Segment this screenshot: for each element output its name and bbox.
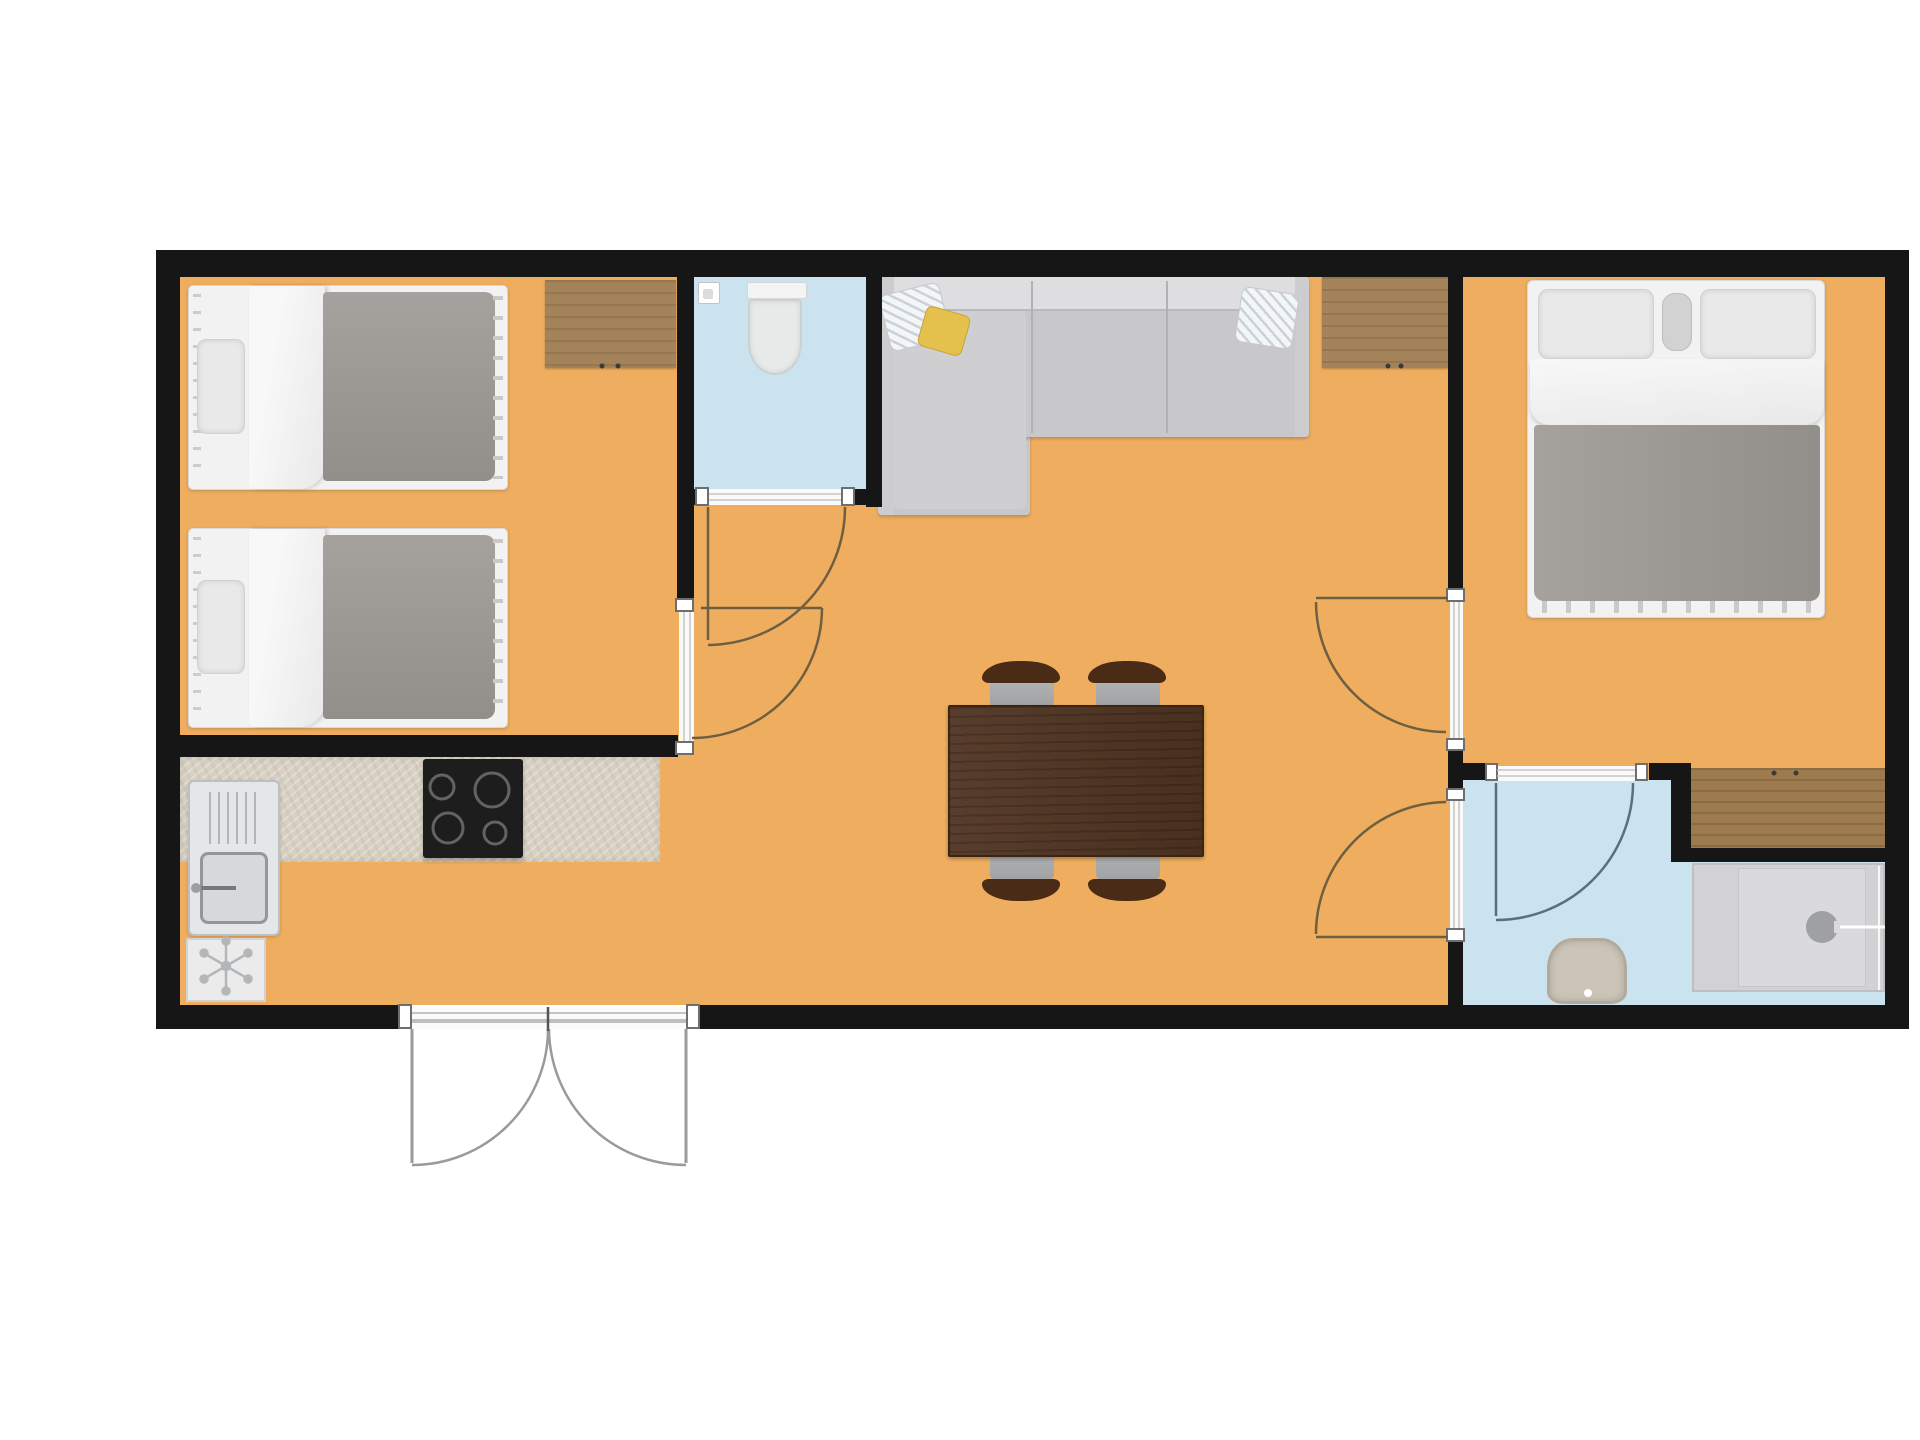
sofa-seam-1 — [1031, 281, 1033, 433]
toilet-paper-holder — [698, 282, 720, 304]
wall-bottom-right — [696, 1005, 1909, 1029]
sheet-fold — [249, 529, 325, 727]
toilet-bowl — [748, 299, 802, 375]
floor-plan — [0, 0, 1920, 1440]
sofa-seam-2 — [1166, 281, 1168, 433]
wall-living-bedroom2-mid — [1448, 751, 1463, 789]
mattress-tufting — [493, 296, 503, 479]
entrance-threshold — [412, 1007, 686, 1029]
mattress-tufting — [493, 539, 503, 717]
washbasin — [1547, 938, 1627, 1004]
bathroom-hall-door-band — [1450, 801, 1463, 928]
entrance-jamb-left — [398, 1004, 412, 1029]
bed-pillow-accent — [1662, 293, 1692, 351]
bedroom-twin-jamb-top — [675, 598, 694, 612]
bedroom-double-door-band — [1450, 602, 1463, 738]
mattress-tufting — [1542, 601, 1812, 613]
wall-bathroom-top-a — [1463, 763, 1487, 780]
cooktop — [423, 759, 523, 858]
duvet — [323, 535, 495, 719]
sheet-fold — [1530, 359, 1824, 425]
wall-living-bedroom2-bottom — [1448, 942, 1463, 1005]
entrance-double-door — [412, 1007, 686, 1165]
basin-drain-dot — [1584, 989, 1592, 997]
sink-basin — [200, 852, 268, 924]
single-bed-2 — [188, 528, 508, 728]
wardrobe — [1691, 768, 1885, 848]
bed-pillow — [197, 580, 245, 673]
bathroom-inner-jamb-left — [1485, 763, 1498, 781]
wall-left — [156, 250, 180, 1029]
bedroom-double-jamb-bottom — [1446, 738, 1465, 751]
bed-pillow-left — [1538, 289, 1654, 359]
refrigerator — [186, 938, 266, 1002]
sofa-pillow-striped-right — [1234, 286, 1300, 350]
wall-wc-left — [677, 277, 694, 602]
wall-bottom-left — [156, 1005, 402, 1029]
desk-cabinet — [545, 280, 676, 368]
duvet — [1534, 425, 1820, 601]
bed-pillow-right — [1700, 289, 1816, 359]
entrance-jamb-right — [686, 1004, 700, 1029]
bed-pillow — [197, 339, 245, 434]
entrance-arc-left — [412, 1029, 548, 1165]
shower-inner — [1738, 868, 1866, 987]
wc-jamb-left — [695, 487, 709, 506]
wall-living-bedroom2-top — [1448, 277, 1463, 602]
wall-kitchen-bedroom — [160, 735, 678, 757]
bedroom-twin-jamb-bottom — [675, 741, 694, 755]
wall-right — [1885, 250, 1909, 1029]
single-bed-1 — [188, 285, 508, 490]
toilet-tank — [747, 282, 807, 299]
duvet — [323, 292, 495, 481]
sheet-fold — [249, 286, 325, 489]
sideboard — [1322, 277, 1448, 368]
bathroom-hall-jamb-bottom — [1446, 928, 1465, 942]
wall-top — [156, 250, 1909, 277]
paper-roll — [703, 289, 713, 299]
wc-door-band — [709, 489, 841, 505]
entrance-arc-right — [549, 1029, 686, 1165]
dining-table — [948, 705, 1204, 857]
double-bed — [1527, 280, 1825, 618]
bedroom-twin-door-band — [679, 612, 694, 741]
wall-wc-right — [866, 277, 882, 507]
bathroom-hall-jamb-top — [1446, 788, 1465, 801]
bathroom-inner-door-band — [1497, 766, 1635, 781]
bathroom-inner-jamb-right — [1635, 763, 1648, 781]
wc-jamb-right — [841, 487, 855, 506]
wall-closet-bottom — [1687, 848, 1885, 862]
bedroom-double-jamb-top — [1446, 588, 1465, 602]
